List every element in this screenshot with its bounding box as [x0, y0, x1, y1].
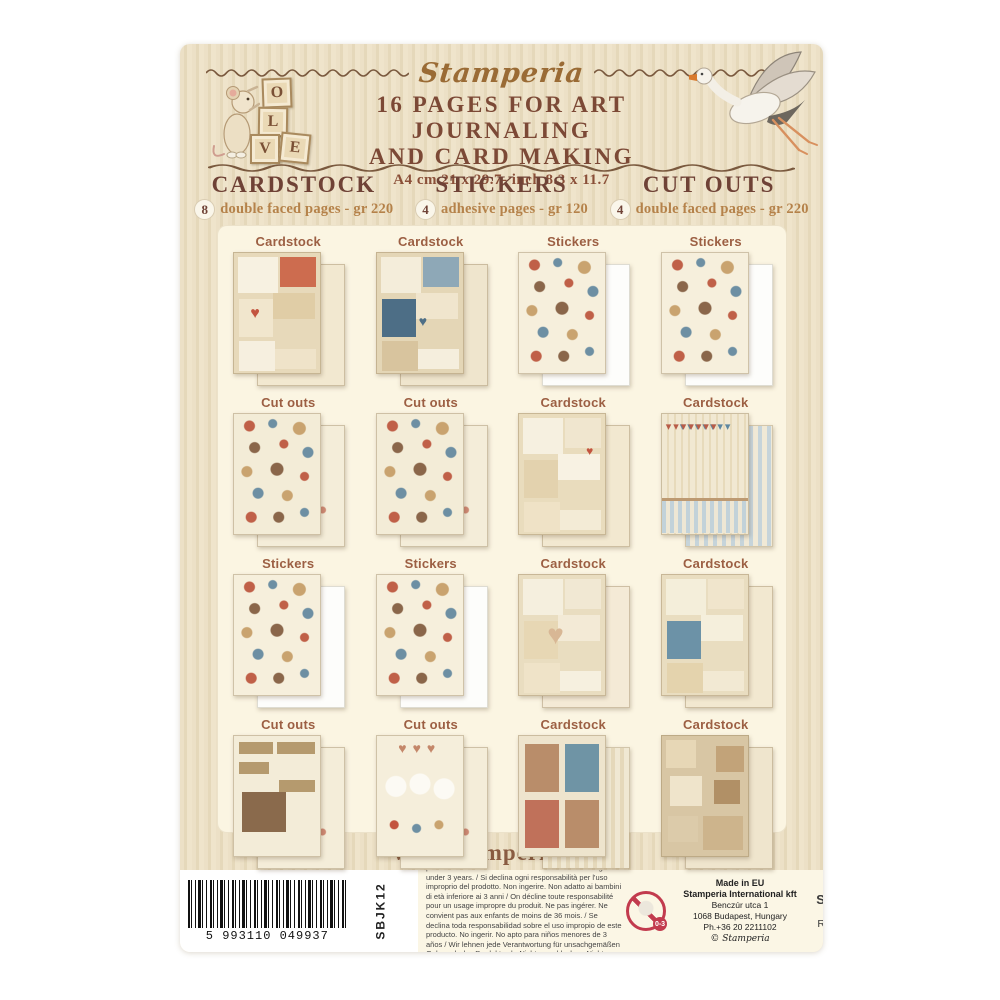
- category-name: CUT OUTS: [605, 172, 813, 198]
- front-sheet: [518, 252, 606, 374]
- grid-cell: Cut outs: [217, 708, 360, 869]
- product-photo: Stamperia O L V E: [0, 0, 1000, 1000]
- cell-label: Cardstock: [645, 556, 788, 571]
- category-cardstock: CARDSTOCK 8 double faced pages - gr 220: [190, 172, 398, 220]
- grid-cell: Cardstock: [645, 386, 788, 547]
- front-sheet: [376, 413, 464, 535]
- cell-label: Stickers: [360, 556, 503, 571]
- product-thumbnail: [659, 735, 773, 869]
- front-sheet: [661, 252, 749, 374]
- product-thumbnail: [374, 735, 488, 869]
- grid-cell: Cardstock: [645, 708, 788, 869]
- grid-cell: Cardstock: [217, 225, 360, 386]
- category-name: CARDSTOCK: [190, 172, 398, 198]
- front-sheet: [376, 735, 464, 857]
- block-letter: V: [259, 140, 271, 158]
- front-sheet: [518, 574, 606, 696]
- front-sheet: [661, 574, 749, 696]
- category-desc: double faced pages - gr 220: [220, 201, 393, 218]
- legal-text: We decline all responsibility for improp…: [426, 870, 622, 952]
- scan-line2: BEFORE: [808, 907, 823, 919]
- grid-cell: Stickers: [217, 547, 360, 708]
- grid-cell: Cut outs: [360, 708, 503, 869]
- category-stickers: STICKERS 4 adhesive pages - gr 120: [398, 172, 606, 220]
- made-in: Made in EU: [674, 878, 806, 889]
- product-thumbnail: [374, 413, 488, 547]
- product-thumbnail: [659, 252, 773, 386]
- product-thumbnail: [516, 252, 630, 386]
- age-warning-icon: 0-3: [626, 891, 666, 931]
- front-sheet: [518, 735, 606, 857]
- product-thumbnail: [516, 735, 630, 869]
- cell-label: Cardstock: [502, 556, 645, 571]
- category-count-badge: 8: [194, 199, 215, 220]
- grid-cell: Stickers: [502, 225, 645, 386]
- category-desc: adhesive pages - gr 120: [441, 201, 588, 218]
- letter-block-o: O: [261, 77, 292, 108]
- address-line1: Benczúr utca 1: [674, 900, 806, 911]
- block-letter: L: [268, 113, 279, 131]
- manufacturer-info: Made in EU Stamperia International kft B…: [674, 878, 806, 944]
- grid-cell: Cardstock: [502, 386, 645, 547]
- cell-label: Stickers: [217, 556, 360, 571]
- front-sheet: [661, 413, 749, 535]
- cell-label: Cardstock: [645, 395, 788, 410]
- product-thumbnail: [659, 574, 773, 708]
- product-thumbnail: [231, 252, 345, 386]
- product-thumbnail: [231, 413, 345, 547]
- grid-cell: Stickers: [360, 547, 503, 708]
- cell-label: Cut outs: [217, 717, 360, 732]
- front-sheet: [233, 574, 321, 696]
- block-letter: O: [270, 84, 283, 102]
- cell-label: Stickers: [502, 234, 645, 249]
- barcode-area: 5 993110 049937 SBJK12: [180, 870, 418, 952]
- address-line2: 1068 Budapest, Hungary: [674, 911, 806, 922]
- product-thumbnail: [374, 574, 488, 708]
- stork-illustration: [689, 46, 821, 178]
- company-name: Stamperia International kft: [674, 889, 806, 900]
- grid-cell: Cut outs: [360, 386, 503, 547]
- cell-label: Cut outs: [217, 395, 360, 410]
- cell-label: Cut outs: [360, 717, 503, 732]
- scan-line3: RECYCLING: [808, 919, 823, 931]
- thumbnail-grid: Cardstock Cardstock Stickers: [217, 225, 787, 833]
- page-title-line1: 16 PAGES FOR ART JOURNALING: [300, 92, 703, 144]
- front-sheet: [233, 735, 321, 857]
- cell-label: Cut outs: [360, 395, 503, 410]
- content-categories: CARDSTOCK 8 double faced pages - gr 220 …: [190, 172, 813, 220]
- front-sheet: [661, 735, 749, 857]
- product-thumbnail: [516, 413, 630, 547]
- phone-number: Ph.+36 20 2211102: [674, 922, 806, 933]
- brand-logo: Stamperia: [417, 58, 585, 89]
- thumbnail-panel: Cardstock Cardstock Stickers: [217, 225, 787, 833]
- barcode-icon: [188, 880, 346, 928]
- front-sheet: [376, 252, 464, 374]
- scan-me-label: SCAN ME BEFORE RECYCLING: [808, 892, 823, 930]
- grid-cell: Cardstock: [502, 547, 645, 708]
- front-sheet: [376, 574, 464, 696]
- grid-cell: Cardstock: [502, 708, 645, 869]
- packaging-back: Stamperia O L V E: [180, 44, 823, 952]
- category-cutouts: CUT OUTS 4 double faced pages - gr 220: [605, 172, 813, 220]
- letter-block-v: V: [250, 134, 280, 164]
- category-count-badge: 4: [610, 199, 631, 220]
- scan-line1: SCAN ME: [808, 892, 823, 907]
- barcode-digits: 5 993110 049937: [206, 929, 329, 943]
- product-thumbnail: [231, 735, 345, 869]
- product-thumbnail: [659, 413, 773, 547]
- grid-cell: Cardstock: [360, 225, 503, 386]
- age-warning-label: 0-3: [653, 917, 667, 931]
- cell-label: Cardstock: [502, 395, 645, 410]
- front-sheet: [518, 413, 606, 535]
- category-count-badge: 4: [415, 199, 436, 220]
- front-sheet: [233, 252, 321, 374]
- copyright-signature: © Stamperia: [674, 934, 806, 944]
- grid-cell: Stickers: [645, 225, 788, 386]
- footer-strip: 5 993110 049937 SBJK12 We decline all re…: [180, 870, 823, 952]
- cell-label: Cardstock: [645, 717, 788, 732]
- product-code: SBJK12: [374, 882, 388, 939]
- front-sheet: [233, 413, 321, 535]
- product-thumbnail: [374, 252, 488, 386]
- cell-label: Cardstock: [360, 234, 503, 249]
- grid-cell: Cardstock: [645, 547, 788, 708]
- category-desc: double faced pages - gr 220: [636, 201, 809, 218]
- product-thumbnail: [231, 574, 345, 708]
- category-name: STICKERS: [398, 172, 606, 198]
- cell-label: Stickers: [645, 234, 788, 249]
- cell-label: Cardstock: [502, 717, 645, 732]
- cell-label: Cardstock: [217, 234, 360, 249]
- grid-cell: Cut outs: [217, 386, 360, 547]
- product-thumbnail: [516, 574, 630, 708]
